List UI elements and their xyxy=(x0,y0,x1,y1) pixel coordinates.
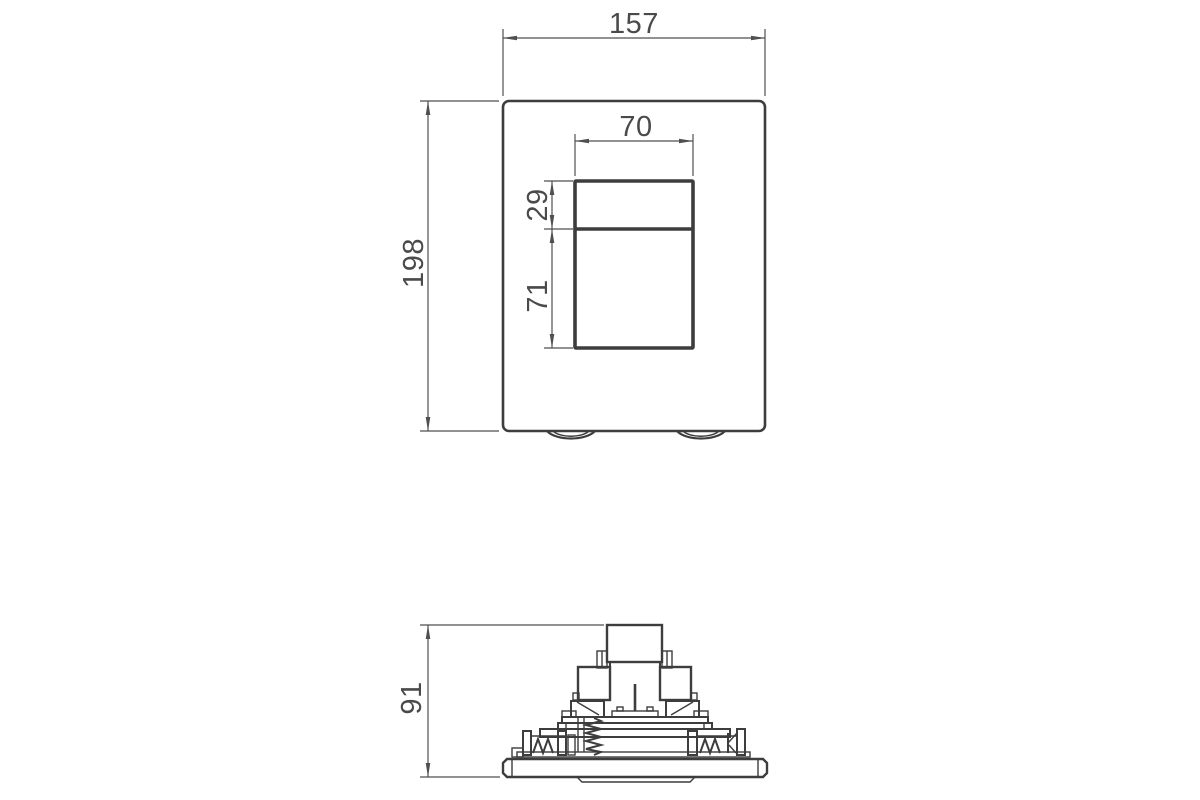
dim-small-button-height: 29 xyxy=(522,181,573,229)
dim-label-cutout-width: 70 xyxy=(619,111,652,143)
ridge-tick-right xyxy=(647,707,653,711)
plate-outline xyxy=(503,101,765,431)
shoulder-block-right xyxy=(660,667,691,700)
bracket-left-diagonal xyxy=(577,702,599,715)
ratchet-clip-right xyxy=(688,729,745,755)
actuator-box xyxy=(607,625,662,662)
dim-label-large-button-height: 71 xyxy=(522,279,554,312)
ridge-tick-left xyxy=(617,707,623,711)
shoulder-block-left xyxy=(578,667,610,700)
front-view xyxy=(503,101,765,439)
dim-large-button-height: 71 xyxy=(522,229,573,348)
drawing-canvas: 157 198 70 29 71 xyxy=(0,0,1200,800)
ratchet-clip-left xyxy=(512,731,575,757)
dim-label-small-button-height: 29 xyxy=(522,188,554,221)
dimensions: 157 198 70 29 71 xyxy=(396,8,765,777)
dim-cutout-width: 70 xyxy=(575,111,693,176)
clip-right-outer-post xyxy=(737,729,745,755)
side-view xyxy=(503,625,767,782)
bracket-right-diagonal xyxy=(671,702,693,715)
button-cutout xyxy=(575,181,693,348)
clip-left-teeth xyxy=(533,739,553,753)
clip-right-teeth xyxy=(700,739,720,753)
dim-label-overall-height: 198 xyxy=(398,238,430,288)
dim-label-overall-depth: 91 xyxy=(396,681,428,714)
base-plate-profile xyxy=(503,759,767,777)
dim-overall-width: 157 xyxy=(503,8,765,96)
dim-overall-height: 198 xyxy=(398,101,499,431)
dim-label-overall-width: 157 xyxy=(609,8,659,40)
technical-drawing-svg: 157 198 70 29 71 xyxy=(0,0,1200,800)
